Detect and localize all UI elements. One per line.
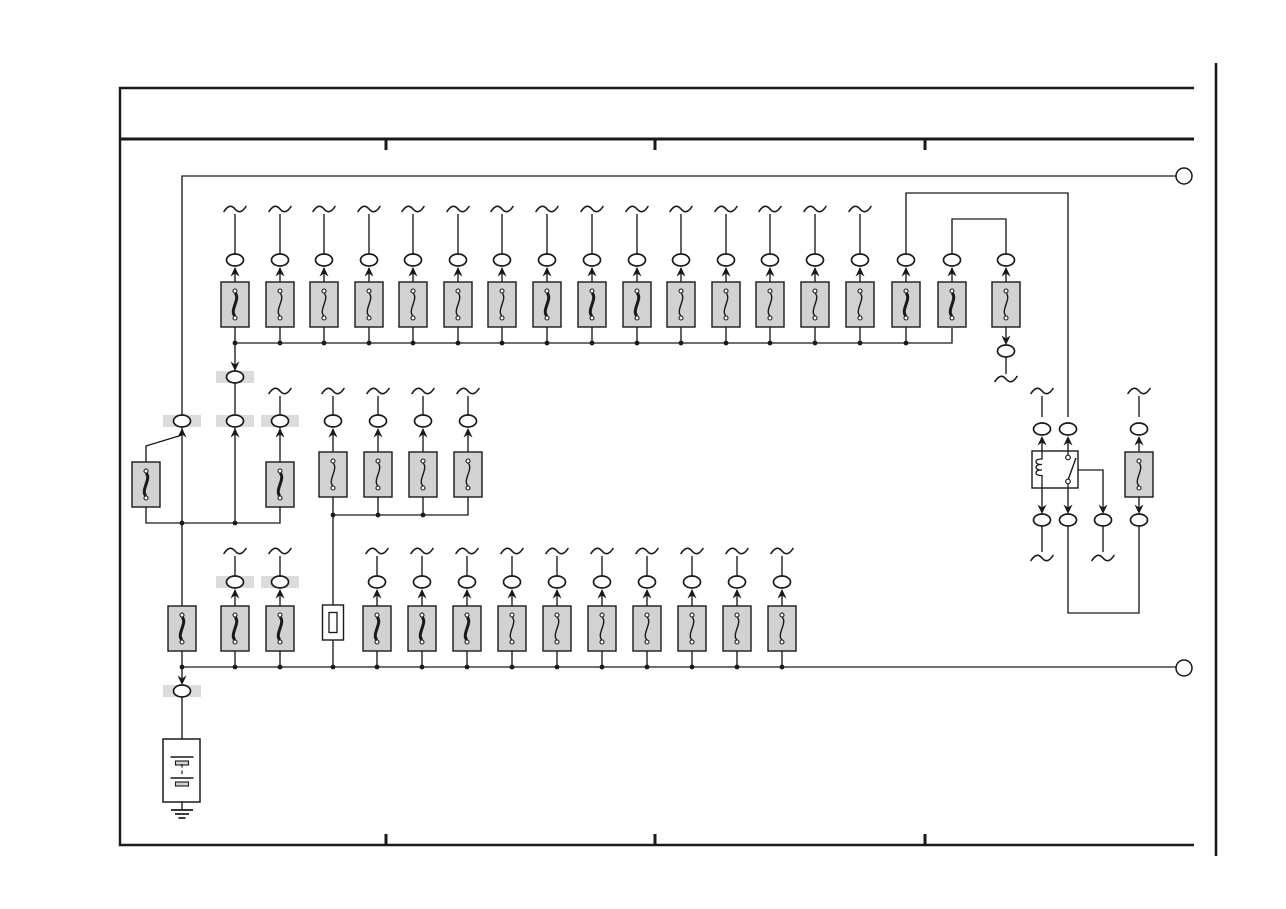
page-connector-circle bbox=[1176, 168, 1192, 184]
fuse-terminal-bottom bbox=[278, 640, 282, 644]
wire-continuation-symbol bbox=[269, 206, 291, 211]
fuse-terminal-bottom bbox=[180, 640, 184, 644]
fuse-terminal-top bbox=[233, 289, 237, 293]
wire-continuation-symbol bbox=[804, 206, 826, 211]
wire-continuation-symbol bbox=[546, 548, 568, 553]
connector-terminal-oval bbox=[807, 254, 824, 266]
wire-continuation-symbol bbox=[1128, 388, 1150, 393]
connector-terminal-oval bbox=[639, 576, 656, 588]
connector-terminal-oval bbox=[227, 371, 244, 383]
connector-terminal-oval bbox=[174, 685, 191, 697]
fuse-terminal-top bbox=[590, 289, 594, 293]
fuse-terminal-bottom bbox=[376, 486, 380, 490]
connector-terminal-oval bbox=[718, 254, 735, 266]
fuse-terminal-top bbox=[813, 289, 817, 293]
connector-terminal-oval bbox=[852, 254, 869, 266]
fusible-link-element bbox=[329, 613, 337, 633]
junction-dot bbox=[180, 521, 185, 526]
junction-dot bbox=[233, 341, 238, 346]
fuse-terminal-top bbox=[768, 289, 772, 293]
fuse-terminal-bottom bbox=[456, 316, 460, 320]
connector-terminal-oval bbox=[673, 254, 690, 266]
wire-continuation-symbol bbox=[447, 206, 469, 211]
fuse-terminal-bottom bbox=[768, 316, 772, 320]
connector-terminal-oval bbox=[584, 254, 601, 266]
wire-continuation-symbol bbox=[681, 548, 703, 553]
fuse-terminal-top bbox=[144, 469, 148, 473]
fuse-terminal-bottom bbox=[421, 486, 425, 490]
junction-dot bbox=[679, 341, 684, 346]
junction-dot bbox=[322, 341, 327, 346]
junction-dot bbox=[545, 341, 550, 346]
fuse-terminal-top bbox=[500, 289, 504, 293]
wire-continuation-symbol bbox=[456, 548, 478, 553]
fuse-terminal-bottom bbox=[500, 316, 504, 320]
connector-terminal-oval bbox=[494, 254, 511, 266]
junction-dot bbox=[690, 665, 695, 670]
junction-dot bbox=[858, 341, 863, 346]
fuse-terminal-top bbox=[510, 613, 514, 617]
fuse-terminal-bottom bbox=[904, 316, 908, 320]
junction-dot bbox=[411, 341, 416, 346]
fuse-terminal-bottom bbox=[690, 640, 694, 644]
fuse-terminal-top bbox=[465, 613, 469, 617]
fuse-terminal-top bbox=[278, 613, 282, 617]
wire-continuation-symbol bbox=[726, 548, 748, 553]
junction-dot bbox=[510, 665, 515, 670]
connector-terminal-oval bbox=[272, 576, 289, 588]
connector-terminal-oval bbox=[370, 415, 387, 427]
wire-continuation-symbol bbox=[591, 548, 613, 553]
fuse-terminal-bottom bbox=[858, 316, 862, 320]
wire-continuation-symbol bbox=[313, 206, 335, 211]
wire-continuation-symbol bbox=[491, 206, 513, 211]
fuse-terminal-bottom bbox=[735, 640, 739, 644]
connector-terminal-oval bbox=[1131, 423, 1148, 435]
connector-terminal-oval bbox=[1095, 514, 1112, 526]
fuse-terminal-top bbox=[904, 289, 908, 293]
connector-terminal-oval bbox=[227, 415, 244, 427]
connector-terminal-oval bbox=[325, 415, 342, 427]
junction-dot bbox=[331, 665, 336, 670]
fuse-terminal-top bbox=[1137, 459, 1141, 463]
junction-dot bbox=[278, 665, 283, 670]
connector-terminal-oval bbox=[272, 415, 289, 427]
connector-terminal-oval bbox=[729, 576, 746, 588]
connector-terminal-oval bbox=[1131, 514, 1148, 526]
junction-dot bbox=[555, 665, 560, 670]
fuse-terminal-bottom bbox=[322, 316, 326, 320]
wire-continuation-symbol bbox=[457, 388, 479, 393]
fuse-terminal-top bbox=[690, 613, 694, 617]
fuse-terminal-bottom bbox=[233, 316, 237, 320]
wire-continuation-symbol bbox=[269, 388, 291, 393]
connector-terminal-oval bbox=[1034, 423, 1051, 435]
connector-terminal-oval bbox=[898, 254, 915, 266]
connector-terminal-oval bbox=[227, 576, 244, 588]
fuse-terminal-bottom bbox=[724, 316, 728, 320]
fuse-terminal-top bbox=[466, 459, 470, 463]
fuse-terminal-bottom bbox=[950, 316, 954, 320]
junction-dot bbox=[635, 341, 640, 346]
connector-terminal-oval bbox=[998, 254, 1015, 266]
fuse-terminal-bottom bbox=[1137, 486, 1141, 490]
wire bbox=[146, 435, 182, 462]
junction-dot bbox=[420, 665, 425, 670]
fuse-terminal-bottom bbox=[635, 316, 639, 320]
junction-dot bbox=[180, 665, 185, 670]
fuse-terminal-top bbox=[724, 289, 728, 293]
fuse-terminal-top bbox=[950, 289, 954, 293]
connector-terminal-oval bbox=[944, 254, 961, 266]
battery-cell-bar bbox=[176, 782, 189, 786]
connector-terminal-oval bbox=[414, 576, 431, 588]
fuse-terminal-bottom bbox=[465, 640, 469, 644]
wire-continuation-symbol bbox=[670, 206, 692, 211]
fuse-terminal-top bbox=[600, 613, 604, 617]
fuse-terminal-top bbox=[645, 613, 649, 617]
fuse-terminal-top bbox=[233, 613, 237, 617]
junction-dot bbox=[645, 665, 650, 670]
fuse-terminal-top bbox=[1004, 289, 1008, 293]
wire bbox=[235, 328, 952, 370]
wire bbox=[146, 507, 280, 523]
connector-terminal-oval bbox=[762, 254, 779, 266]
fuse-terminal-top bbox=[679, 289, 683, 293]
fuse-terminal-bottom bbox=[1004, 316, 1008, 320]
schematic-page bbox=[0, 0, 1286, 909]
wire bbox=[952, 219, 1006, 254]
fuse-terminal-bottom bbox=[420, 640, 424, 644]
wire-continuation-symbol bbox=[322, 388, 344, 393]
wire-continuation-symbol bbox=[224, 548, 246, 553]
fuse-terminal-bottom bbox=[510, 640, 514, 644]
fuse-terminal-bottom bbox=[466, 486, 470, 490]
fuse-terminal-top bbox=[858, 289, 862, 293]
fuse-terminal-bottom bbox=[590, 316, 594, 320]
junction-dot bbox=[375, 665, 380, 670]
fuse-terminal-top bbox=[375, 613, 379, 617]
junction-dot bbox=[768, 341, 773, 346]
junction-dot bbox=[904, 341, 909, 346]
wire-continuation-symbol bbox=[412, 388, 434, 393]
fuse-terminal-bottom bbox=[645, 640, 649, 644]
connector-terminal-oval bbox=[316, 254, 333, 266]
connector-terminal-oval bbox=[594, 576, 611, 588]
wire-continuation-symbol bbox=[759, 206, 781, 211]
wire-continuation-symbol bbox=[402, 206, 424, 211]
wire-continuation-symbol bbox=[501, 548, 523, 553]
wire-continuation-symbol bbox=[849, 206, 871, 211]
connector-terminal-oval bbox=[174, 415, 191, 427]
junction-dot bbox=[367, 341, 372, 346]
wire-continuation-symbol bbox=[411, 548, 433, 553]
fuse-terminal-top bbox=[322, 289, 326, 293]
wire-continuation-symbol bbox=[626, 206, 648, 211]
fuse-terminal-bottom bbox=[278, 496, 282, 500]
junction-dot bbox=[233, 665, 238, 670]
wire-continuation-symbol bbox=[1031, 555, 1053, 560]
connector-terminal-oval bbox=[684, 576, 701, 588]
connector-terminal-oval bbox=[1060, 423, 1077, 435]
wire bbox=[333, 497, 468, 515]
fuse-terminal-bottom bbox=[555, 640, 559, 644]
connector-terminal-oval bbox=[459, 576, 476, 588]
junction-dot bbox=[780, 665, 785, 670]
junction-dot bbox=[724, 341, 729, 346]
fuse-terminal-top bbox=[780, 613, 784, 617]
fuse-terminal-top bbox=[411, 289, 415, 293]
fuse-terminal-bottom bbox=[545, 316, 549, 320]
connector-terminal-oval bbox=[227, 254, 244, 266]
fuse-terminal-top bbox=[635, 289, 639, 293]
fuse-terminal-bottom bbox=[331, 486, 335, 490]
relay-contact bbox=[1066, 479, 1071, 484]
fuse-terminal-top bbox=[278, 289, 282, 293]
junction-dot bbox=[465, 665, 470, 670]
connector-terminal-oval bbox=[450, 254, 467, 266]
wire-continuation-symbol bbox=[771, 548, 793, 553]
junction-dot bbox=[278, 341, 283, 346]
fuse-terminal-top bbox=[331, 459, 335, 463]
wire bbox=[182, 176, 1176, 606]
fuse-terminal-top bbox=[421, 459, 425, 463]
connector-terminal-oval bbox=[369, 576, 386, 588]
junction-dot bbox=[376, 513, 381, 518]
fuse-terminal-bottom bbox=[600, 640, 604, 644]
fuse-terminal-bottom bbox=[278, 316, 282, 320]
junction-dot bbox=[500, 341, 505, 346]
diagram-svg bbox=[0, 0, 1286, 909]
fuse-terminal-top bbox=[456, 289, 460, 293]
connector-terminal-oval bbox=[774, 576, 791, 588]
wire-continuation-symbol bbox=[224, 206, 246, 211]
fuse-terminal-bottom bbox=[367, 316, 371, 320]
connector-terminal-oval bbox=[460, 415, 477, 427]
fuse-terminal-top bbox=[376, 459, 380, 463]
wire-continuation-symbol bbox=[269, 548, 291, 553]
fuse-terminal-top bbox=[420, 613, 424, 617]
connector-terminal-oval bbox=[998, 345, 1015, 357]
fuse-terminal-top bbox=[545, 289, 549, 293]
connector-terminal-oval bbox=[361, 254, 378, 266]
fuse-terminal-bottom bbox=[144, 496, 148, 500]
wire-continuation-symbol bbox=[715, 206, 737, 211]
wire-continuation-symbol bbox=[367, 388, 389, 393]
junction-dot bbox=[233, 521, 238, 526]
junction-dot bbox=[813, 341, 818, 346]
fuse-terminal-top bbox=[555, 613, 559, 617]
relay-contact bbox=[1066, 455, 1071, 460]
wire-continuation-symbol bbox=[1031, 388, 1053, 393]
connector-terminal-oval bbox=[415, 415, 432, 427]
junction-dot bbox=[590, 341, 595, 346]
connector-terminal-oval bbox=[1060, 514, 1077, 526]
wire-continuation-symbol bbox=[636, 548, 658, 553]
fuse-terminal-bottom bbox=[233, 640, 237, 644]
wire bbox=[906, 193, 1068, 417]
fuse-terminal-bottom bbox=[411, 316, 415, 320]
page-connector-circle bbox=[1176, 660, 1192, 676]
connector-terminal-oval bbox=[272, 254, 289, 266]
fuse-terminal-bottom bbox=[813, 316, 817, 320]
connector-terminal-oval bbox=[504, 576, 521, 588]
fuse-terminal-bottom bbox=[780, 640, 784, 644]
junction-dot bbox=[331, 513, 336, 518]
connector-terminal-oval bbox=[1034, 514, 1051, 526]
wire-continuation-symbol bbox=[366, 548, 388, 553]
wire-continuation-symbol bbox=[1092, 555, 1114, 560]
connector-terminal-oval bbox=[629, 254, 646, 266]
wire-continuation-symbol bbox=[358, 206, 380, 211]
wire-continuation-symbol bbox=[581, 206, 603, 211]
connector-terminal-oval bbox=[405, 254, 422, 266]
connector-terminal-oval bbox=[539, 254, 556, 266]
fuse-terminal-top bbox=[735, 613, 739, 617]
junction-dot bbox=[421, 513, 426, 518]
junction-dot bbox=[600, 665, 605, 670]
junction-dot bbox=[456, 341, 461, 346]
fuse-terminal-bottom bbox=[679, 316, 683, 320]
wire-continuation-symbol bbox=[536, 206, 558, 211]
fuse-terminal-top bbox=[180, 613, 184, 617]
connector-terminal-oval bbox=[549, 576, 566, 588]
wire-continuation-symbol bbox=[995, 376, 1017, 381]
junction-dot bbox=[735, 665, 740, 670]
fuse-terminal-top bbox=[278, 469, 282, 473]
fuse-terminal-bottom bbox=[375, 640, 379, 644]
fuse-terminal-top bbox=[367, 289, 371, 293]
